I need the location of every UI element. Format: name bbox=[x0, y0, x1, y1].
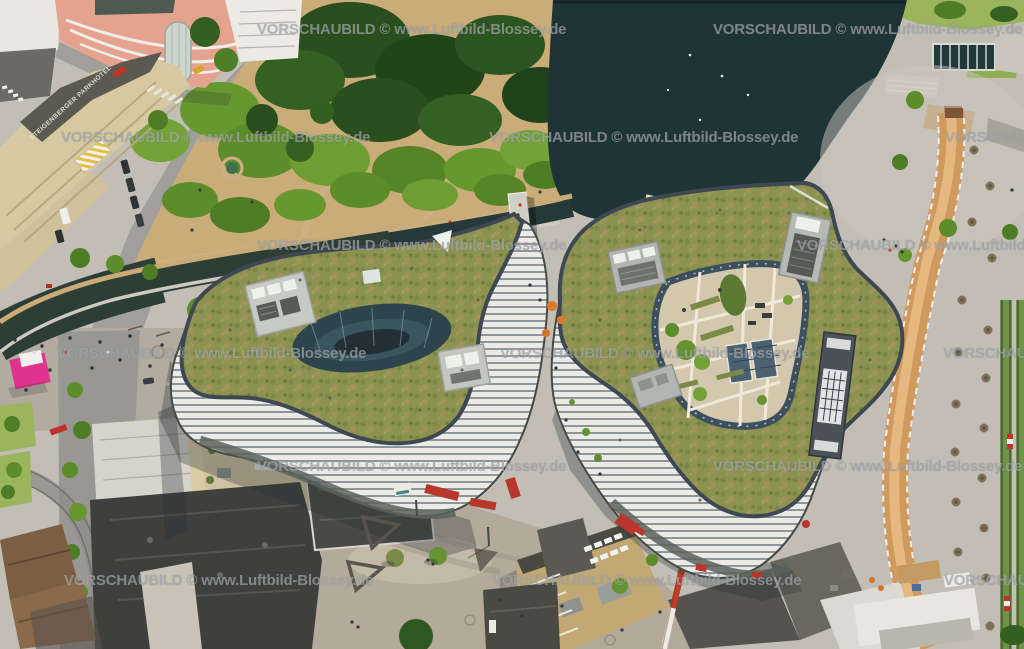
dark-flat-roofs bbox=[90, 482, 322, 649]
tram-corridor bbox=[1000, 300, 1024, 649]
facade-banner bbox=[489, 620, 496, 633]
white-building-nw bbox=[0, 0, 60, 54]
park-statue bbox=[226, 162, 238, 174]
aerial-photo-canvas: STEIGENBERGER PARKHOTEL bbox=[0, 0, 1024, 649]
aerial-photo-koebogen: STEIGENBERGER PARKHOTEL bbox=[0, 0, 1024, 649]
orange-parasol bbox=[547, 301, 557, 311]
roof-hvac-center bbox=[438, 344, 490, 391]
